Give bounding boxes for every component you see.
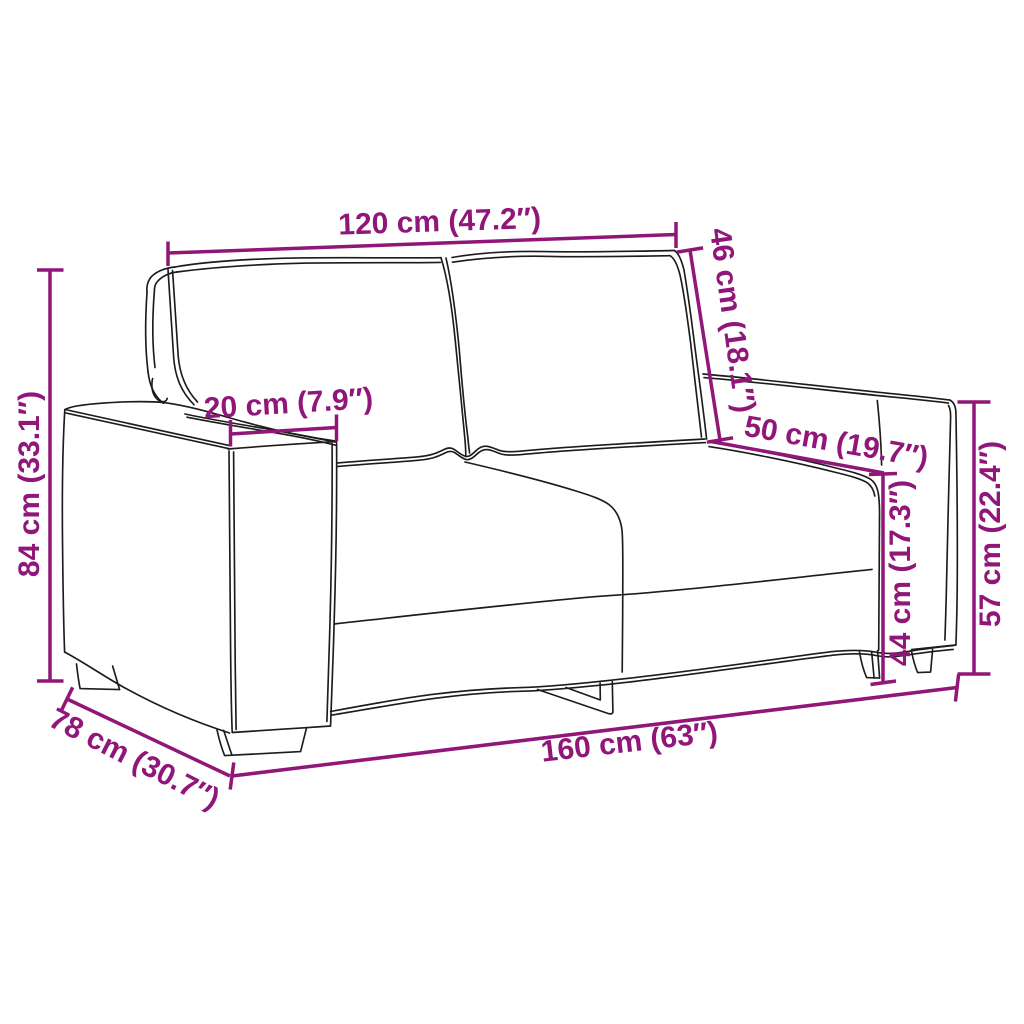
svg-text:20 cm (7.9″): 20 cm (7.9″) (203, 382, 374, 425)
svg-text:44 cm (17.3″): 44 cm (17.3″) (884, 480, 917, 666)
svg-text:84 cm (33.1″): 84 cm (33.1″) (13, 391, 46, 577)
svg-text:160 cm (63″): 160 cm (63″) (539, 716, 719, 769)
svg-text:120 cm (47.2″): 120 cm (47.2″) (338, 202, 542, 242)
svg-text:57 cm (22.4″): 57 cm (22.4″) (974, 441, 1007, 627)
